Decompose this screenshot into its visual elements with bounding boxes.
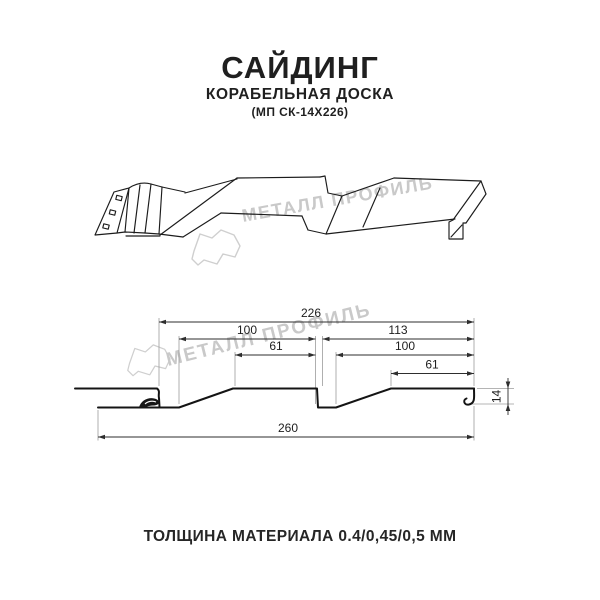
dim-label-height: 14 xyxy=(490,390,504,404)
nail-flange xyxy=(95,188,129,235)
material-thickness-note: ТОЛЩИНА МАТЕРИАЛА 0.4/0,45/0,5 ММ xyxy=(0,528,600,546)
j-hook-end xyxy=(449,220,466,239)
interlock-hook xyxy=(139,398,159,407)
dim-label-right-top: 61 xyxy=(425,358,439,372)
technical-drawing-canvas: МЕТАЛЛ ПРОФИЛЬ МЕТАЛЛ ПРОФИЛЬ xyxy=(0,0,600,600)
watermark-text-lower: МЕТАЛЛ ПРОФИЛЬ xyxy=(164,300,373,371)
profile-outline xyxy=(75,389,474,408)
watermark-text-upper: МЕТАЛЛ ПРОФИЛЬ xyxy=(240,173,434,226)
dimension-lines xyxy=(98,320,510,440)
dim-label-right-board: 113 xyxy=(388,323,407,337)
dim-label-total: 260 xyxy=(278,421,298,435)
dim-label-right-mid: 100 xyxy=(395,339,415,353)
dim-label-left-top: 61 xyxy=(269,339,283,353)
dim-label-left-board: 100 xyxy=(237,323,257,337)
dim-label-overall: 226 xyxy=(301,306,321,320)
product-sheet: САЙДИНГ КОРАБЕЛЬНАЯ ДОСКА (МП СК-14Х226)… xyxy=(0,0,600,600)
